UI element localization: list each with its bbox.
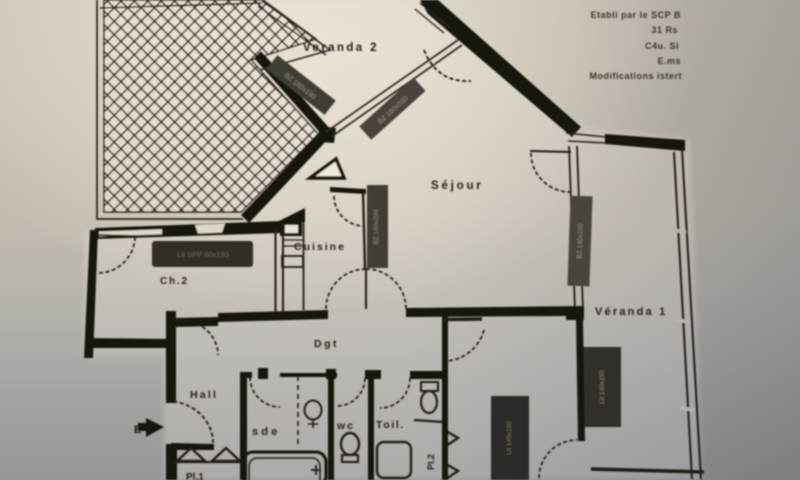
svg-text:BZ 160x200: BZ 160x200 — [373, 209, 380, 244]
svg-text:Séjour: Séjour — [431, 180, 484, 192]
svg-text:sde: sde — [252, 426, 281, 438]
svg-text:Dgt: Dgt — [314, 338, 339, 350]
svg-text:Ch.2: Ch.2 — [160, 276, 189, 287]
svg-text:Lit 140x190: Lit 140x190 — [599, 370, 606, 404]
svg-text:Veranda 2: Veranda 2 — [303, 42, 379, 54]
svg-text:Lit 140x190: Lit 140x190 — [506, 421, 513, 455]
svg-text:31 Rs: 31 Rs — [651, 25, 678, 35]
svg-text:Pl.1: Pl.1 — [186, 472, 204, 480]
svg-text:Hall: Hall — [190, 389, 218, 401]
svg-text:C4u. Si: C4u. Si — [645, 41, 679, 51]
svg-text:Lit SPP 60x190: Lit SPP 60x190 — [177, 250, 229, 259]
svg-text:Toil.: Toil. — [376, 419, 405, 431]
svg-text:Pl.2: Pl.2 — [426, 454, 436, 470]
svg-text:Etabli par le SCP B: Etabli par le SCP B — [591, 10, 681, 20]
svg-text:Modifications istert: Modifications istert — [589, 71, 682, 81]
svg-text:BZ 140x100: BZ 140x100 — [576, 223, 584, 259]
svg-text:Cuisine: Cuisine — [294, 241, 346, 253]
svg-text:E.ms: E.ms — [657, 56, 681, 66]
svg-text:Véranda 1: Véranda 1 — [595, 306, 667, 318]
svg-text:wc: wc — [336, 420, 355, 432]
